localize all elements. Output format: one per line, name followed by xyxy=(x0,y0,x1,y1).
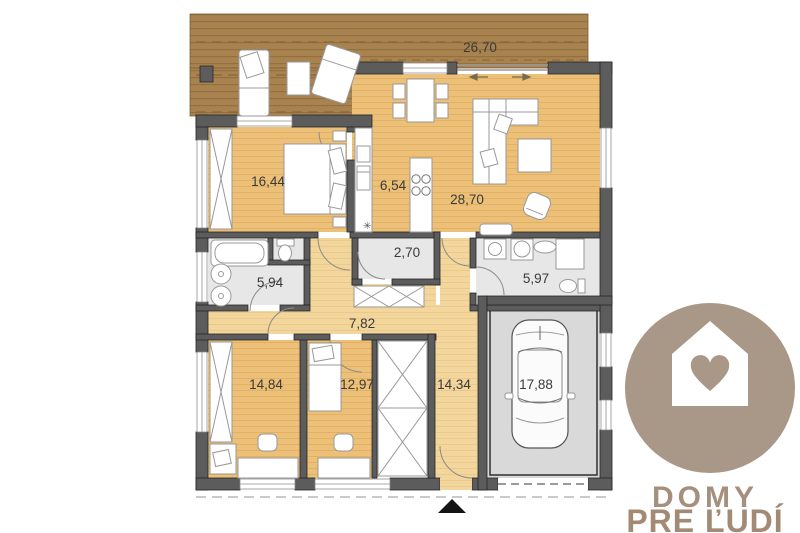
logo-badge xyxy=(625,303,795,473)
washer-icon xyxy=(484,239,506,259)
corridor-floor xyxy=(435,305,478,490)
logo-text-line2: PRE ĽUDÍ xyxy=(603,503,800,533)
bedroom-left-area-label: 14,84 xyxy=(249,377,283,392)
toilet-icon xyxy=(560,279,586,293)
lounger-icon xyxy=(239,50,269,116)
terrace-area-label: 26,70 xyxy=(463,40,497,55)
wardrobe-icon xyxy=(210,342,232,442)
utility-area-label: 5,97 xyxy=(523,271,549,286)
double-bed-icon xyxy=(284,131,347,227)
hallway-area-label: 7,82 xyxy=(349,316,375,331)
living-area-label: 28,70 xyxy=(450,192,484,207)
bench-icon xyxy=(480,224,512,235)
coffee-table-icon xyxy=(518,139,551,172)
closet-icon xyxy=(378,341,427,476)
corridor-area-label: 14,34 xyxy=(437,377,471,392)
closet-small-area-label: 2,70 xyxy=(394,245,420,260)
fridge-symbol-icon: ✳ xyxy=(363,221,371,232)
house-heart-icon xyxy=(625,303,795,473)
entrance-arrow-icon xyxy=(438,499,466,513)
side-table-icon xyxy=(287,62,310,95)
bathtub-icon xyxy=(211,240,268,266)
hall-wardrobe-icon xyxy=(354,286,424,307)
bedroom-mid-area-label: 12,97 xyxy=(340,377,374,392)
garage-area-label: 17,88 xyxy=(519,377,553,392)
wardrobe-icon xyxy=(210,129,232,229)
bathroom-area-label: 5,94 xyxy=(257,275,284,290)
bedroom-main-area-label: 16,44 xyxy=(251,174,285,189)
single-bed-icon xyxy=(309,343,341,411)
shower-icon xyxy=(556,239,584,269)
brand-logo: DOMY PRE ĽUDÍ xyxy=(605,300,800,533)
kitchen-area-label: 6,54 xyxy=(380,178,407,193)
